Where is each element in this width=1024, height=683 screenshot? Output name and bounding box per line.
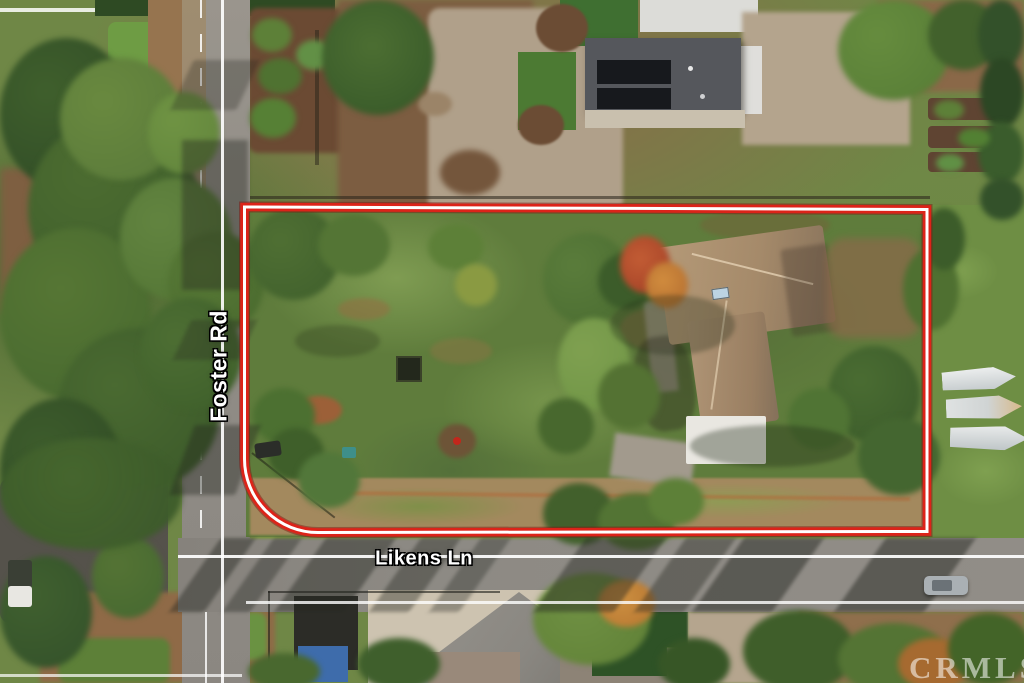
crmls-watermark: CRMLS: [909, 650, 1024, 683]
road-label-likens-ln: Likens Ln: [375, 548, 473, 571]
road-label-foster-rd: Foster Rd: [206, 310, 233, 422]
boundary-outer-glow: [244, 207, 927, 533]
property-boundary-overlay: [0, 0, 1024, 683]
boundary-white-core: [244, 207, 927, 533]
boundary-red-line: [244, 207, 927, 533]
aerial-property-photo: Foster Rd Likens Ln CRMLS: [0, 0, 1024, 683]
